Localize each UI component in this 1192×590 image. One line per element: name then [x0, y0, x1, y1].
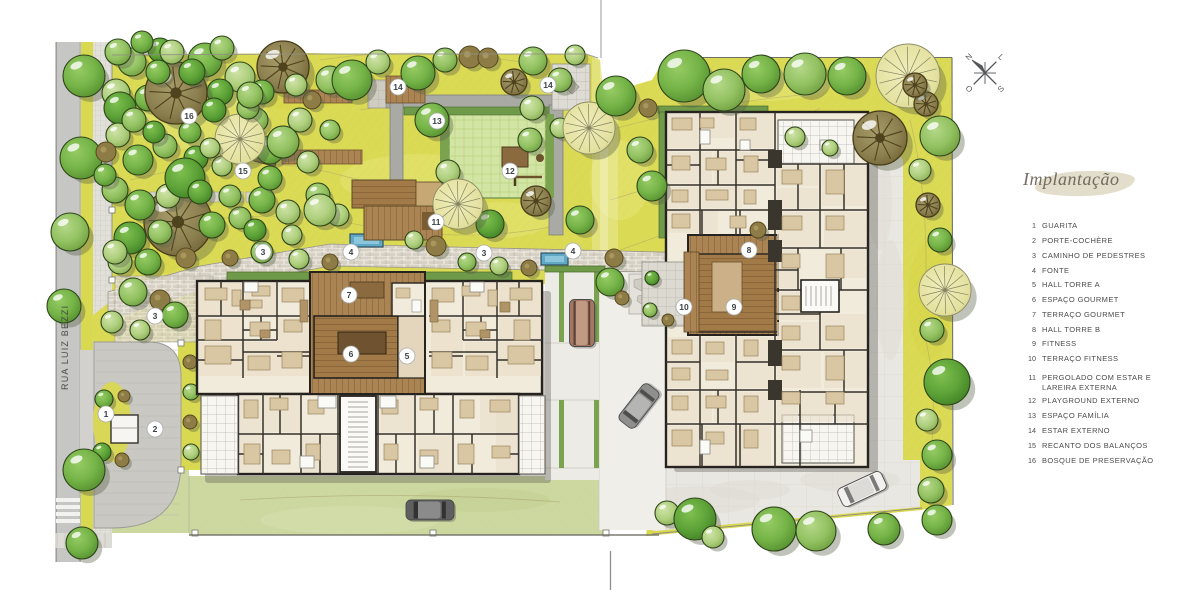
- svg-text:3: 3: [153, 311, 158, 321]
- svg-text:16: 16: [184, 111, 194, 121]
- svg-text:4: 4: [349, 247, 354, 257]
- svg-text:14: 14: [393, 82, 403, 92]
- svg-text:5: 5: [405, 351, 410, 361]
- svg-text:11: 11: [432, 217, 441, 227]
- svg-text:14: 14: [543, 80, 553, 90]
- svg-text:RUA LUIZ BEZZI: RUA LUIZ BEZZI: [60, 305, 70, 390]
- svg-text:2: 2: [153, 424, 158, 434]
- svg-text:15: 15: [238, 166, 248, 176]
- svg-text:3: 3: [261, 247, 266, 257]
- svg-text:9: 9: [732, 302, 737, 312]
- svg-text:8: 8: [747, 245, 752, 255]
- svg-text:1: 1: [104, 409, 109, 419]
- svg-text:10: 10: [679, 302, 689, 312]
- svg-text:4: 4: [571, 246, 576, 256]
- svg-text:3: 3: [482, 248, 487, 258]
- svg-text:12: 12: [505, 166, 515, 176]
- svg-text:7: 7: [347, 290, 352, 300]
- svg-text:6: 6: [349, 349, 354, 359]
- svg-text:13: 13: [432, 116, 442, 126]
